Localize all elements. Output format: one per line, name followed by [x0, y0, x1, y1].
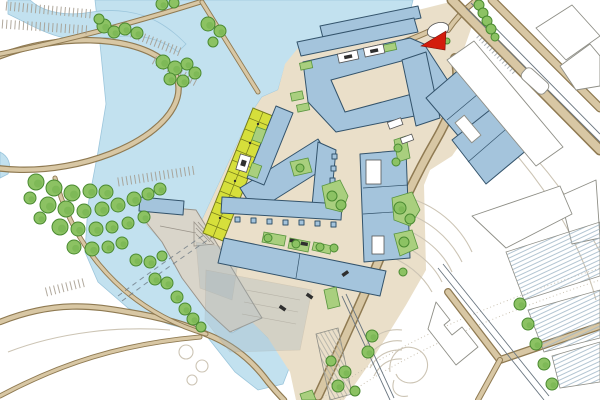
- tree-crown-shade: [127, 221, 133, 227]
- tree-crown-shade: [154, 277, 160, 283]
- tree-crown-shade: [124, 27, 130, 33]
- site-plan-canvas: [0, 0, 600, 400]
- hatched-block-3: [552, 342, 600, 388]
- tree-crown-shade: [147, 192, 153, 198]
- tree: [316, 243, 324, 251]
- tree-crown-shade: [70, 191, 78, 199]
- tree: [196, 322, 206, 332]
- tree: [336, 200, 346, 210]
- tree-crown-shade: [371, 334, 377, 340]
- tree: [264, 234, 272, 242]
- tree: [169, 0, 179, 8]
- tree-crown-shade: [186, 62, 192, 68]
- tree-crown-shade: [173, 66, 180, 73]
- tree-crown-shade: [107, 245, 113, 251]
- tree: [208, 37, 218, 47]
- tree: [94, 14, 104, 24]
- tree-crown-shade: [194, 71, 200, 77]
- tree: [399, 268, 407, 276]
- tree-crown-shade: [52, 186, 60, 194]
- tree-crown-shade: [82, 209, 89, 216]
- tree-crown-shade: [135, 258, 141, 264]
- tree: [330, 244, 338, 252]
- tree-crown-shade: [136, 31, 142, 37]
- tree-crown-shade: [367, 350, 373, 356]
- tree: [296, 164, 304, 172]
- tree-crown-shade: [29, 196, 35, 202]
- tree-crown-shade: [76, 227, 83, 234]
- tree-crown-shade: [219, 29, 225, 35]
- tree-crown-shade: [72, 245, 79, 252]
- tree-crown-shade: [46, 203, 54, 211]
- tree: [394, 144, 402, 152]
- tree: [327, 191, 337, 201]
- tree-crown-shade: [143, 215, 149, 221]
- tree-crown-shade: [551, 382, 557, 388]
- tree-crown-shade: [519, 302, 525, 308]
- tree-crown-shade: [121, 241, 127, 247]
- tree-crown-shade: [344, 370, 350, 376]
- tree: [157, 251, 167, 261]
- tree-crown-shade: [543, 362, 549, 368]
- tree-crown-shade: [184, 307, 190, 313]
- tree-crown-shade: [149, 260, 155, 266]
- tree: [350, 386, 360, 396]
- tree-crown-shade: [34, 180, 42, 188]
- tree-crown-shade: [176, 295, 182, 301]
- tree-crown-shade: [90, 247, 97, 254]
- tree-crown-shade: [94, 227, 101, 234]
- tree-crown-shade: [113, 30, 119, 36]
- tree-crown-shade: [39, 216, 45, 222]
- tree-crown-shade: [182, 79, 188, 85]
- jagged-footprint: [428, 302, 478, 365]
- tree: [405, 214, 415, 224]
- tree-crown-shade: [161, 2, 167, 8]
- tree-crown-shade: [535, 342, 541, 348]
- tree-crown-shade: [192, 317, 198, 323]
- tree: [292, 240, 300, 248]
- tree-crown-shade: [104, 190, 111, 197]
- tree-crown-shade: [206, 22, 213, 29]
- tree: [326, 356, 336, 366]
- tree: [491, 33, 499, 41]
- tree-crown-shade: [88, 189, 95, 196]
- tree-crown-shade: [116, 203, 123, 210]
- tree-crown-shade: [166, 281, 172, 287]
- tree-crown-shade: [111, 225, 117, 231]
- site-plan: [0, 0, 600, 400]
- tree-crown-shade: [527, 322, 533, 328]
- tree-crown-shade: [64, 207, 72, 215]
- tree-crown-shade: [399, 206, 405, 212]
- tree-crown-shade: [132, 197, 139, 204]
- water-inlet: [0, 152, 10, 178]
- tree-crown-shade: [58, 225, 66, 233]
- tree: [399, 237, 409, 247]
- tree-crown-shade: [100, 207, 107, 214]
- tree-crown-shade: [337, 384, 343, 390]
- tree-crown-shade: [169, 77, 175, 83]
- tree: [486, 24, 496, 34]
- tree: [392, 158, 400, 166]
- tree-crown-shade: [161, 60, 168, 67]
- tree-crown-shade: [159, 187, 165, 193]
